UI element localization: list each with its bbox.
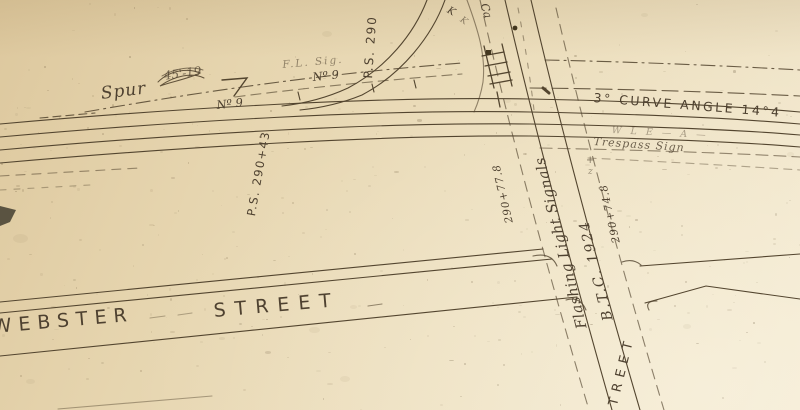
map-linework [0,0,800,410]
right-of-way-lines [40,60,800,170]
small-plus-mark: + [586,156,594,166]
small-z-mark: z [588,168,593,177]
paper-smudge [0,206,16,226]
switch-number-a: Nº 9 [312,69,340,83]
switch-number-b: Nº 9 [216,97,244,111]
webster-street-lines [0,249,800,409]
map-photo: Spur 45'-19 P.S. 290 P.S. 290+43 Nº 9 Nº… [0,0,800,410]
crossing-symbol [482,26,549,107]
